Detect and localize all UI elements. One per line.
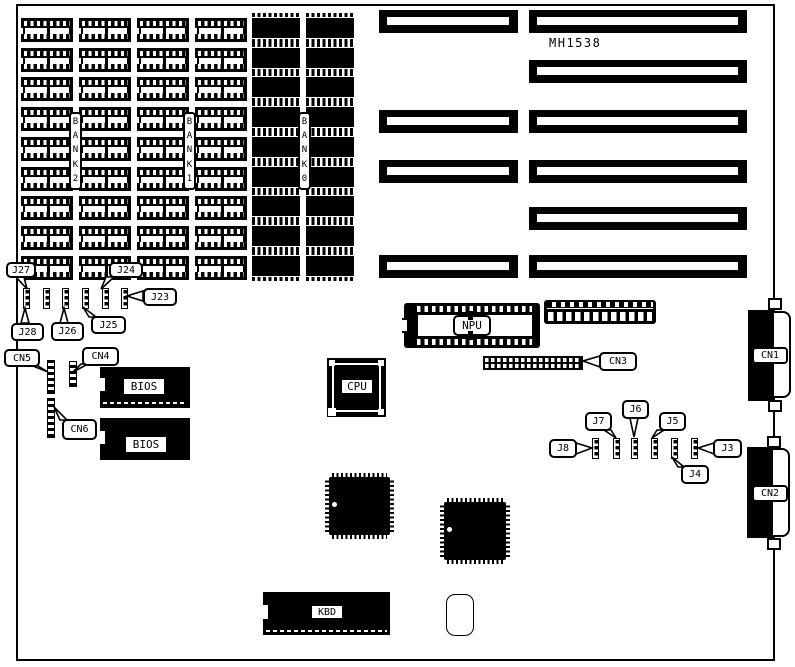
memory-socket: [137, 167, 189, 191]
j27-callout-tail: [14, 276, 30, 291]
j23-callout-arrow: [126, 290, 144, 303]
memory-socket: [79, 167, 131, 191]
memory-socket: [137, 77, 189, 101]
cpu-socket: CPU: [327, 358, 386, 417]
expansion-slot-short: [379, 160, 518, 183]
memory-socket: [21, 137, 73, 161]
cn4-label: CN4: [82, 347, 119, 366]
dram-chip: [252, 43, 300, 73]
dram-chip: [306, 43, 354, 73]
memory-socket: [79, 196, 131, 220]
expansion-slot-long: [529, 207, 747, 230]
qfp-chip-2: [440, 498, 510, 564]
memory-socket: [195, 107, 247, 131]
npu-socket: NPU: [404, 303, 540, 348]
dram-chip: [252, 191, 300, 221]
jumper-block: [651, 438, 658, 459]
j7-label: J7: [585, 412, 612, 431]
bios-chip-bottom: BIOS: [100, 418, 190, 460]
memory-socket: [79, 107, 131, 131]
pin1-dot-icon: [447, 527, 452, 532]
memory-socket: [137, 196, 189, 220]
expansion-slot-long: [529, 255, 747, 278]
dram-chip: [306, 221, 354, 251]
kbd-label: KBD: [311, 605, 343, 619]
npu-pin-row-top: [417, 306, 532, 312]
memory-socket: [137, 107, 189, 131]
memory-socket: [79, 18, 131, 42]
board-model-text: MH1538: [549, 36, 601, 50]
npu-pin-row-bottom: [417, 339, 532, 345]
jumper-block: [62, 288, 69, 309]
memory-socket: [137, 137, 189, 161]
cpu-label: CPU: [340, 378, 374, 395]
dram-chip: [306, 72, 354, 102]
npu-notch-icon: [402, 318, 409, 333]
bank0-label: BANK0: [298, 112, 311, 190]
j6-label: J6: [622, 400, 649, 419]
expansion-slot-long: [529, 160, 747, 183]
j3-label: J3: [713, 439, 742, 458]
dram-chip: [306, 132, 354, 162]
memory-socket: [21, 48, 73, 72]
jumper-block: [43, 288, 50, 309]
jumper-block: [23, 288, 30, 309]
j5-label: J5: [659, 412, 686, 431]
jumper-block: [102, 288, 109, 309]
j4-label: J4: [681, 465, 709, 484]
crystal-oscillator: [446, 594, 474, 636]
dram-chip: [252, 162, 300, 192]
j26-label: J26: [51, 322, 84, 341]
j27-label: J27: [6, 262, 36, 278]
bank1-label: BANK1: [183, 112, 196, 190]
dram-chip: [252, 221, 300, 251]
memory-socket: [137, 226, 189, 250]
motherboard-diagram: BANK2 BANK1 BANK0 MH1538 NPU CPU BIOS: [0, 0, 795, 667]
jumper-block: [592, 438, 599, 459]
j8-callout-arrow: [575, 442, 593, 455]
board-outline: [16, 4, 775, 661]
dram-chip: [306, 191, 354, 221]
memory-socket: [21, 226, 73, 250]
memory-socket: [79, 77, 131, 101]
memory-socket: [21, 196, 73, 220]
dram-chip: [306, 13, 354, 43]
pin1-dot-icon: [332, 502, 337, 507]
memory-socket: [195, 226, 247, 250]
memory-socket: [195, 196, 247, 220]
cn1-screw-tab-top: [768, 298, 782, 310]
cpu-chamfer-icon: [328, 408, 336, 416]
j24-label: J24: [109, 262, 143, 278]
expansion-slot-short: [379, 255, 518, 278]
j28-label: J28: [11, 323, 44, 341]
memory-socket: [21, 107, 73, 131]
expansion-slot-long: [529, 60, 747, 83]
memory-socket: [137, 256, 189, 280]
cn2-screw-tab-bottom: [767, 538, 781, 550]
dram-chip: [252, 102, 300, 132]
cn3-header: [483, 356, 583, 370]
j6-callout-tail: [628, 417, 640, 438]
cn6-label: CN6: [62, 419, 97, 440]
j24-callout-tail: [98, 276, 116, 291]
memory-socket: [195, 167, 247, 191]
bios-top-label: BIOS: [123, 378, 165, 395]
expansion-slot-short: [379, 10, 518, 33]
cn2-label: CN2: [752, 485, 788, 502]
memory-socket: [79, 137, 131, 161]
bios-chip-top: BIOS: [100, 367, 190, 408]
j28-callout-tail: [19, 307, 31, 324]
dram-chip: [306, 102, 354, 132]
expansion-slot-long: [529, 110, 747, 133]
memory-socket: [195, 48, 247, 72]
power-connector: [544, 300, 656, 324]
bank2-label: BANK2: [69, 112, 82, 190]
j8-label: J8: [549, 439, 577, 458]
memory-socket: [79, 226, 131, 250]
memory-socket: [79, 48, 131, 72]
expansion-slot-short: [379, 110, 518, 133]
dram-chip: [252, 13, 300, 43]
dram-chip: [252, 132, 300, 162]
kbd-chip: KBD: [263, 592, 390, 635]
cn1-screw-tab-bottom: [768, 400, 782, 412]
memory-socket: [195, 256, 247, 280]
memory-socket: [21, 77, 73, 101]
memory-socket: [137, 18, 189, 42]
memory-socket: [137, 48, 189, 72]
memory-socket: [195, 137, 247, 161]
memory-socket: [195, 18, 247, 42]
jumper-block: [613, 438, 620, 459]
expansion-slot-long: [529, 10, 747, 33]
bios-bottom-label: BIOS: [125, 436, 167, 453]
j23-label: J23: [143, 288, 177, 306]
jumper-block: [631, 438, 638, 459]
j25-label: J25: [91, 316, 126, 334]
memory-socket: [21, 18, 73, 42]
dram-chip: [252, 251, 300, 281]
cn1-label: CN1: [752, 347, 788, 364]
qfp-chip-1: [325, 473, 394, 539]
dram-chip: [306, 162, 354, 192]
cn5-label: CN5: [4, 349, 40, 367]
memory-socket: [195, 77, 247, 101]
dram-chip: [252, 72, 300, 102]
memory-socket: [21, 167, 73, 191]
cn3-label: CN3: [599, 352, 637, 371]
dram-chip: [306, 251, 354, 281]
